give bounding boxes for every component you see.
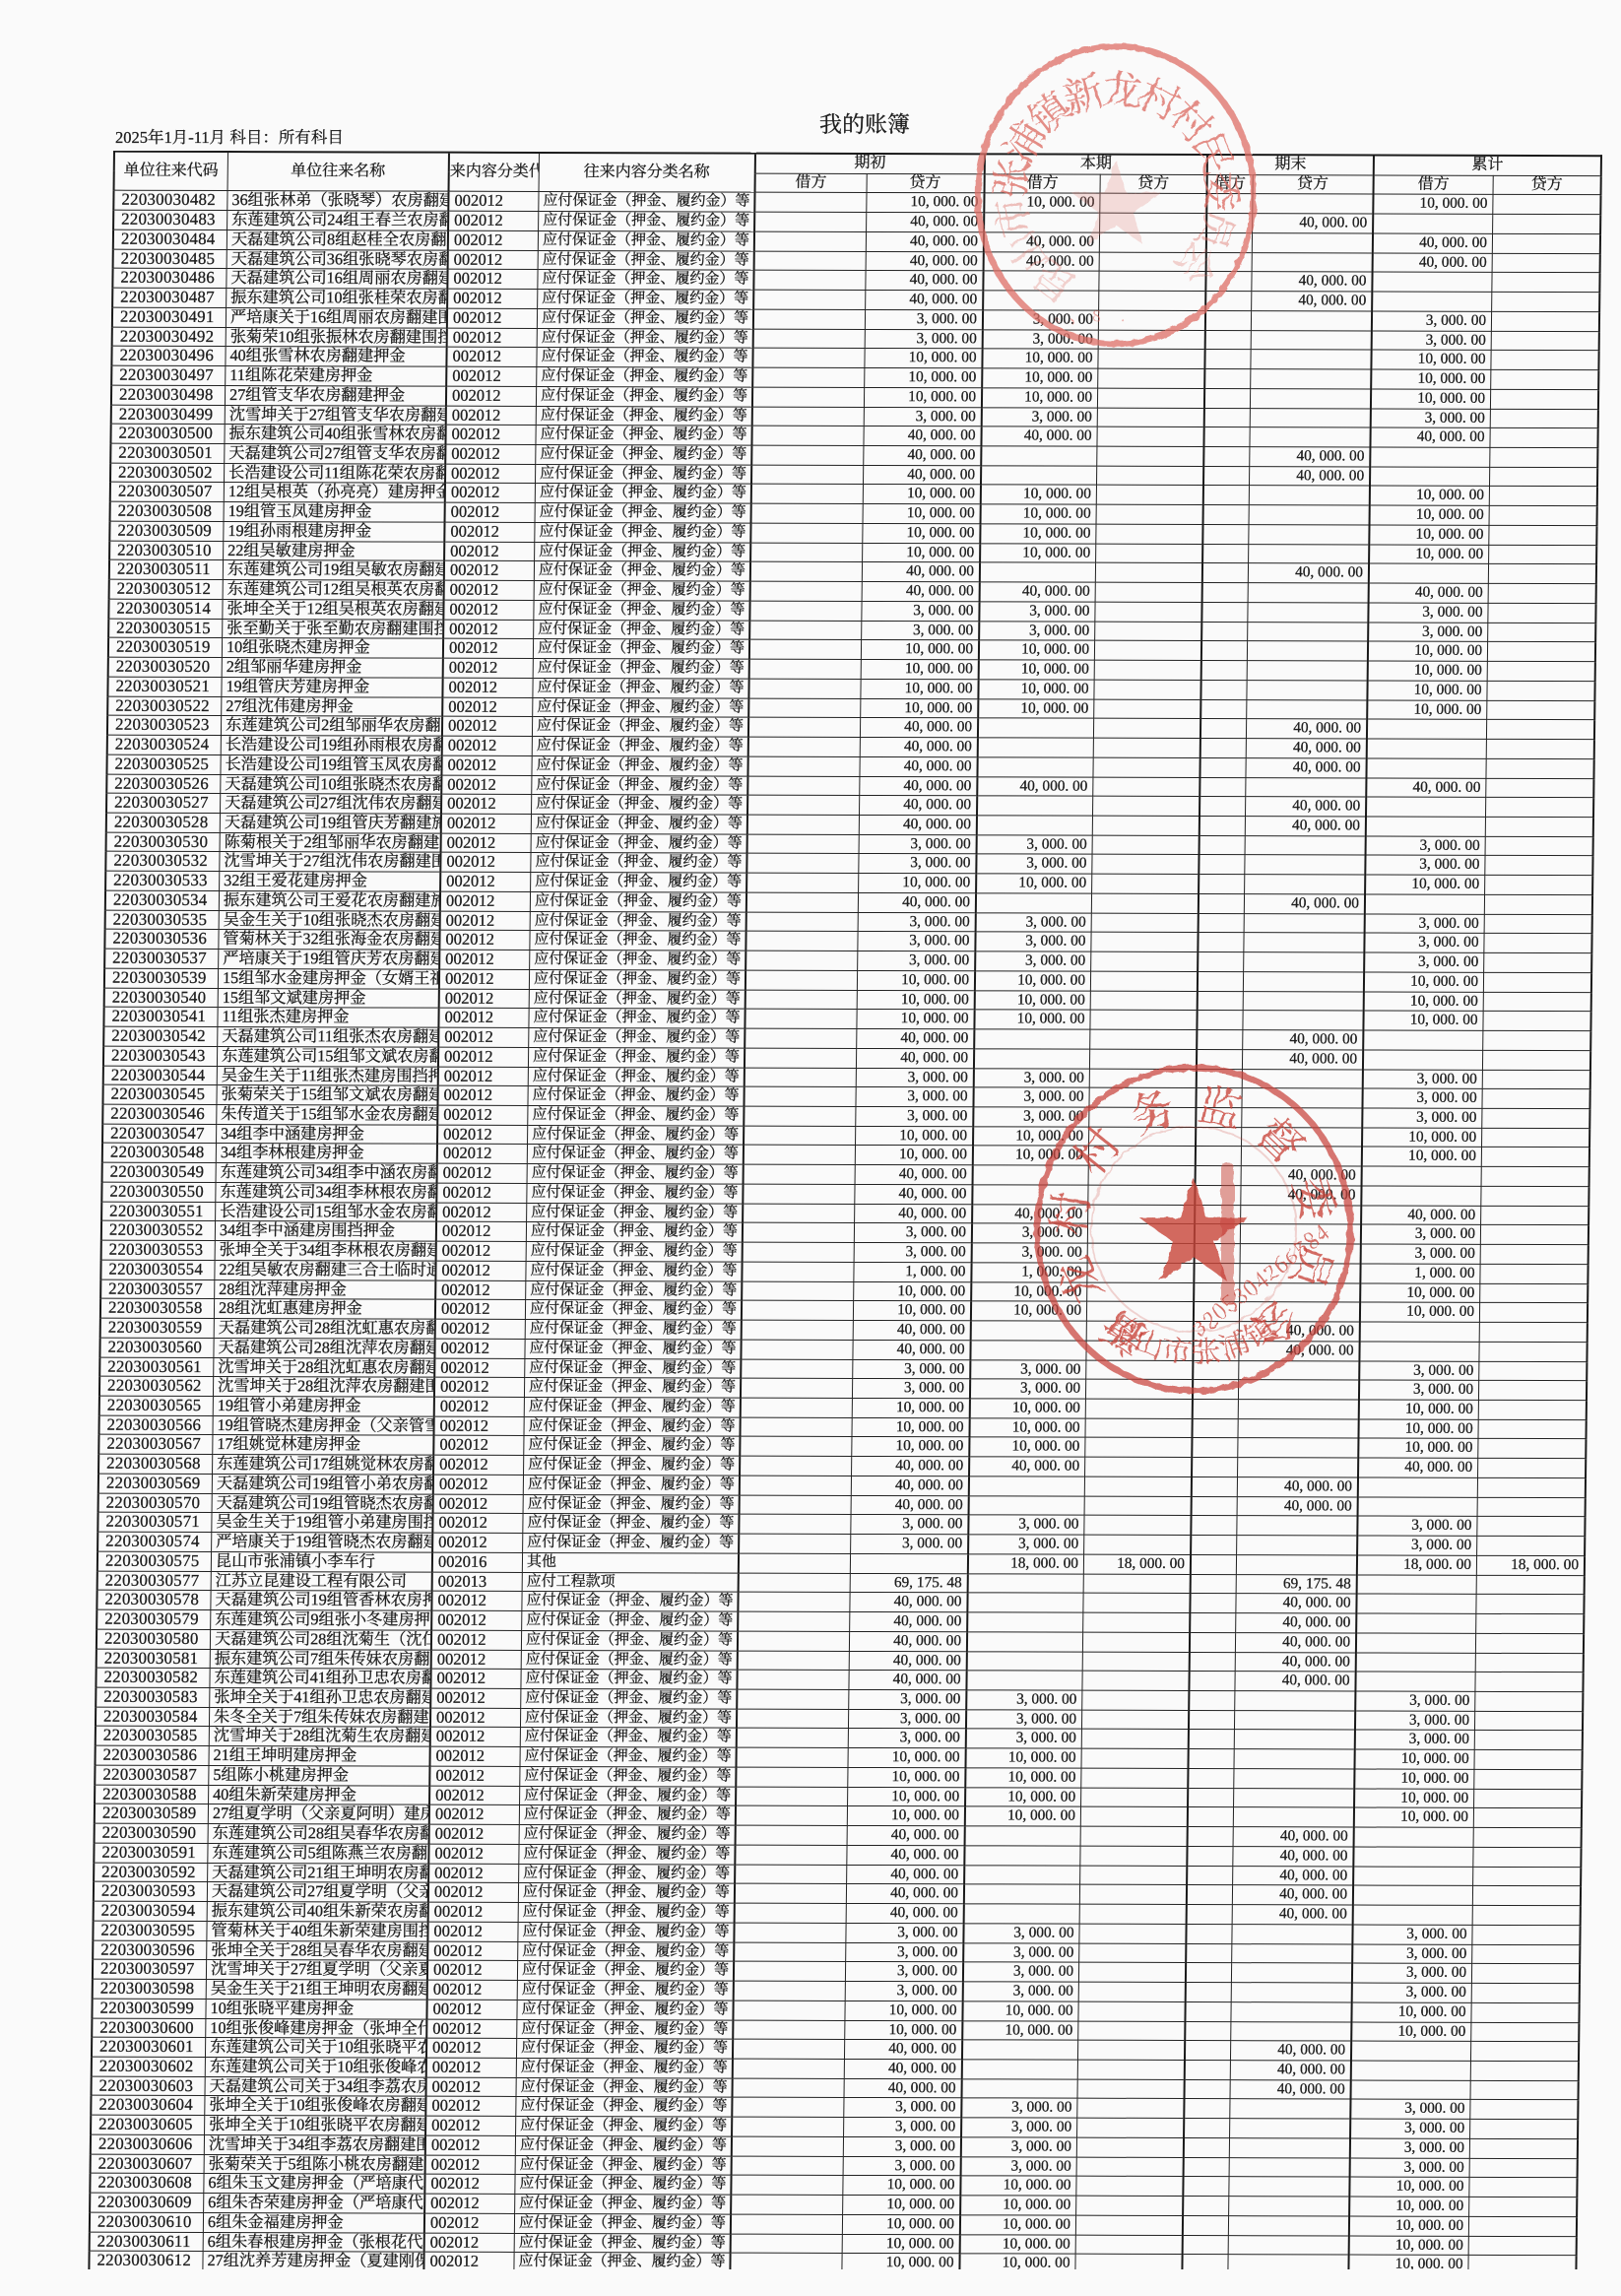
svg-text:村: 村: [1032, 1187, 1101, 1239]
svg-text:村: 村: [1056, 1111, 1134, 1186]
svg-text:龙: 龙: [1039, 1249, 1116, 1316]
svg-text:务: 务: [1120, 1071, 1183, 1146]
svg-text:督: 督: [1245, 1098, 1322, 1175]
svg-text:监: 监: [1193, 1068, 1250, 1140]
svg-text:。，8 .: 。，8 .: [1055, 305, 1134, 326]
